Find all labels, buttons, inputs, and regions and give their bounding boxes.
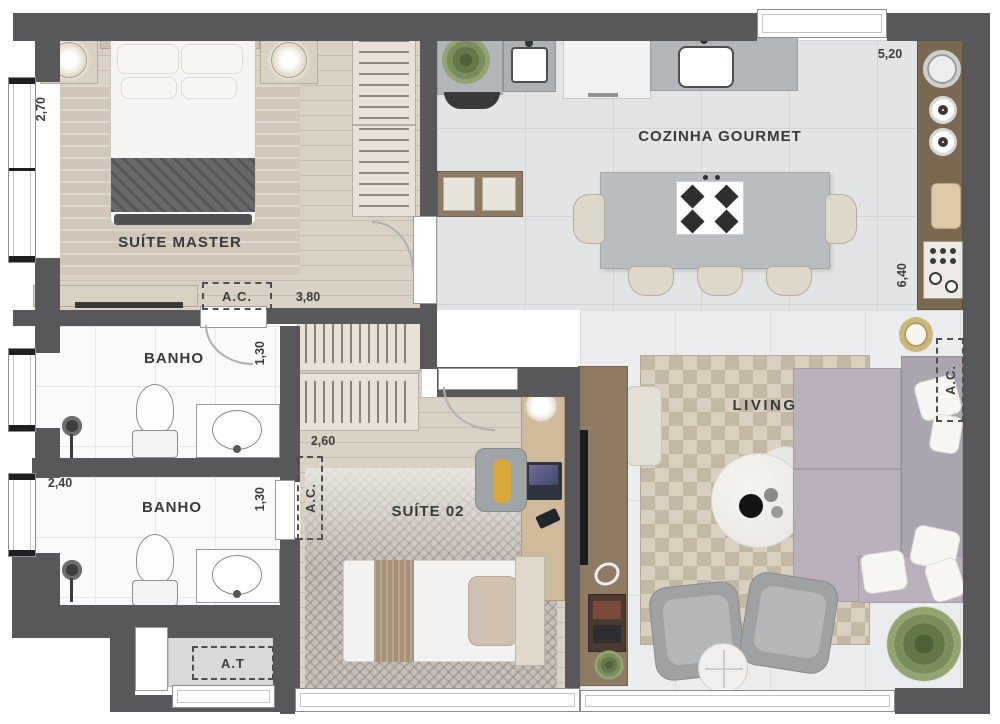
- lamp-icon: [271, 42, 307, 78]
- stool: [697, 266, 743, 296]
- burner-icon: [945, 280, 958, 293]
- door-suite02: [438, 368, 518, 390]
- shower-arm: [70, 578, 73, 602]
- at-box: A.T: [192, 646, 274, 680]
- window: [8, 348, 36, 432]
- burner-icon: [680, 184, 704, 208]
- door-service: [135, 627, 168, 691]
- window-cap: [9, 78, 35, 84]
- burner-icon: [714, 184, 738, 208]
- window-cap: [9, 474, 35, 480]
- bed-blanket: [111, 158, 255, 212]
- ac-label: A.C.: [943, 365, 958, 395]
- wall: [280, 688, 295, 714]
- window-mullion: [9, 168, 35, 171]
- ottoman: [626, 386, 662, 466]
- window-frame: [13, 353, 31, 427]
- armchair: [737, 570, 841, 677]
- dim-banho2-length: 2,40: [38, 475, 82, 491]
- wall: [35, 258, 60, 353]
- pillow: [121, 77, 177, 99]
- window: [8, 473, 36, 557]
- cooktop-knob: [715, 175, 720, 180]
- wall: [963, 30, 990, 712]
- wall: [565, 390, 580, 692]
- room-label-suite02: SUÍTE 02: [386, 502, 470, 520]
- window: [757, 9, 887, 38]
- book: [593, 625, 621, 643]
- table-decor: [771, 506, 783, 518]
- burner-icon: [714, 209, 738, 233]
- dim-text: 6,40: [895, 263, 909, 287]
- wall: [267, 308, 423, 324]
- round-sink: [923, 50, 961, 88]
- burner-icon: [929, 272, 942, 285]
- ac-label: A.C.: [303, 483, 318, 513]
- wall: [35, 35, 60, 82]
- window: [172, 685, 275, 708]
- dim-closet-width: 2,60: [301, 433, 345, 449]
- pillow: [117, 44, 179, 74]
- window-cap: [9, 256, 35, 262]
- window-frame: [13, 478, 31, 552]
- toilet-bowl: [136, 534, 174, 584]
- laptop: [526, 462, 562, 500]
- book: [593, 601, 621, 619]
- wall: [895, 688, 990, 714]
- at-label: A.T: [221, 656, 245, 671]
- knob-icon: [930, 258, 936, 264]
- faucet-icon: [233, 445, 241, 453]
- cutting-board: [931, 183, 961, 229]
- burner-icon: [680, 209, 704, 233]
- plant-icon: [441, 36, 491, 84]
- sofa-pillow: [859, 549, 908, 595]
- room-label-suite-master: SUÍTE MASTER: [95, 232, 265, 252]
- door-kitchen-hall: [413, 216, 437, 304]
- window-frame: [762, 14, 882, 33]
- wall-bowl: [444, 92, 500, 109]
- dim-suite-master-width: 2,70: [30, 86, 52, 132]
- ac-box-living: A.C.: [936, 338, 964, 422]
- window-frame: [585, 695, 890, 707]
- toilet-bowl: [136, 384, 174, 434]
- window-cap: [9, 550, 35, 556]
- ac-box-suite02: A.C.: [297, 456, 323, 540]
- master-wardrobe: [352, 33, 416, 217]
- armchair-seat: [752, 584, 828, 660]
- knob-icon: [950, 258, 956, 264]
- door-banho2: [275, 480, 295, 540]
- plant-icon: [886, 606, 962, 682]
- knob-icon: [940, 258, 946, 264]
- cooktop: [676, 181, 744, 235]
- faucet-icon: [233, 590, 241, 598]
- decor-bowl: [899, 317, 933, 352]
- wall: [420, 13, 437, 218]
- room-label-cozinha: COZINHA GOURMET: [630, 126, 810, 146]
- sink-oval: [212, 410, 262, 450]
- side-table: [698, 643, 748, 693]
- dim-banho2-width: 1,30: [249, 476, 271, 522]
- fridge: [563, 31, 651, 99]
- table-decor: [764, 488, 778, 502]
- bed-footboard: [114, 214, 252, 225]
- sink-basin: [511, 47, 548, 83]
- burner-round-icon: [929, 96, 957, 124]
- room-label-living: LIVING: [730, 395, 800, 415]
- room-label-banho2: BANHO: [136, 498, 208, 516]
- knob-icon: [930, 248, 936, 254]
- bed-headboard: [515, 556, 545, 666]
- pillow: [181, 44, 243, 74]
- wall: [13, 13, 757, 41]
- shower-head-icon: [62, 560, 82, 580]
- table-decor: [739, 494, 763, 518]
- cushion-seam: [794, 468, 900, 470]
- cart-shelf: [443, 177, 475, 211]
- pillow: [468, 576, 518, 646]
- shower-arm: [70, 434, 73, 458]
- ac-box-master: A.C.: [202, 282, 272, 310]
- stove-panel: [923, 241, 963, 299]
- window-cap: [9, 349, 35, 355]
- window-frame: [300, 693, 575, 707]
- stool: [573, 194, 605, 244]
- dim-text: 2,70: [34, 97, 48, 121]
- table-cross: [705, 668, 743, 670]
- room-label-banho1: BANHO: [138, 349, 210, 367]
- dim-hall-length: 3,80: [286, 289, 330, 305]
- knob-icon: [950, 248, 956, 254]
- window-frame: [177, 690, 270, 703]
- floor-plan: A.C. A.C. A.C. A.T SUÍTE MASTER COZINHA …: [0, 0, 1000, 724]
- pillow: [181, 77, 237, 99]
- dim-kitchen-length: 6,40: [891, 252, 913, 298]
- fridge-handle: [588, 93, 618, 97]
- dim-kitchen-width: 5,20: [868, 46, 912, 62]
- cooktop-knob: [703, 175, 708, 180]
- ac-label: A.C.: [222, 289, 252, 304]
- folded-clothes-icon: [305, 319, 413, 363]
- wardrobe-divider: [353, 124, 415, 126]
- stool: [825, 194, 857, 244]
- knob-icon: [940, 248, 946, 254]
- wall: [13, 310, 201, 326]
- wall: [420, 302, 437, 369]
- toilet-tank: [132, 430, 178, 458]
- laptop-screen: [529, 465, 558, 485]
- closet-unit: [297, 373, 419, 431]
- dim-text: 1,30: [253, 341, 267, 365]
- balcony-window: [580, 690, 895, 712]
- stool: [628, 266, 674, 296]
- tv-master: [75, 302, 183, 308]
- plant-icon: [594, 650, 624, 680]
- dim-banho1-width: 1,30: [249, 330, 271, 376]
- cart-shelf: [482, 177, 516, 211]
- balcony-window: [295, 688, 580, 712]
- book-stack: [588, 594, 626, 652]
- dim-text: 1,30: [253, 487, 267, 511]
- sink-oval: [212, 555, 262, 595]
- bed-blanket: [374, 560, 414, 662]
- desk-chair: [475, 448, 527, 512]
- stool: [766, 266, 812, 296]
- chair-cushion: [493, 459, 511, 503]
- burner-round-icon: [929, 128, 957, 156]
- shower-head-icon: [62, 416, 82, 436]
- sink-basin-2: [678, 46, 734, 88]
- toilet-tank: [132, 580, 178, 606]
- window-cap: [9, 425, 35, 431]
- folded-clothes-icon: [305, 381, 411, 423]
